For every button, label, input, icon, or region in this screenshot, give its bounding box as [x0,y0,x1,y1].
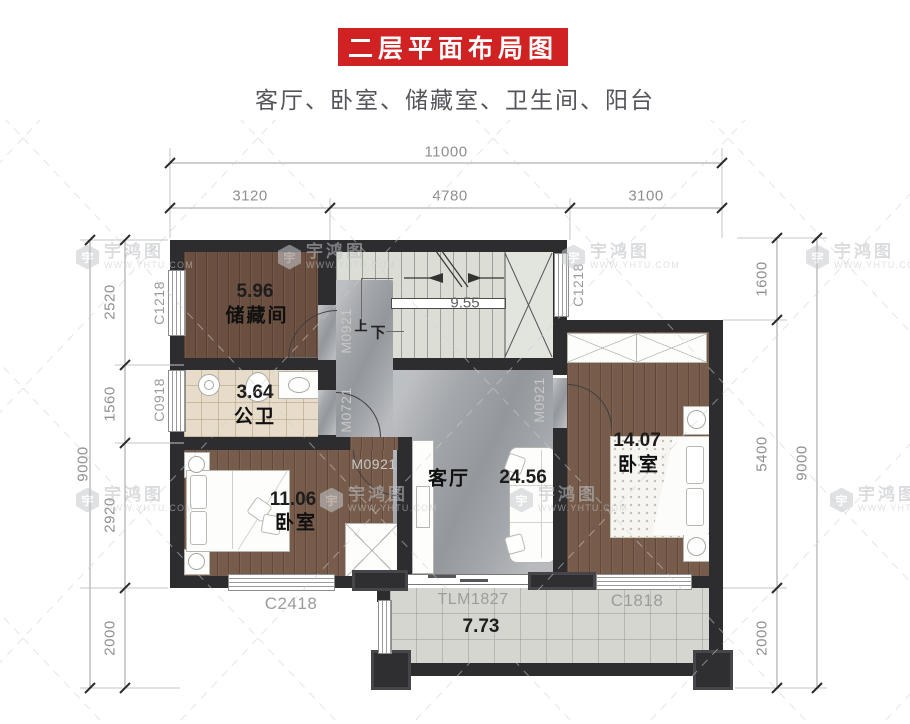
nightstand-left-top-plant [188,456,205,473]
label-window-c1818: C1818 [611,591,664,611]
wall-bottom-a [170,576,228,588]
page-subtitle: 客厅、卧室、储藏室、卫生间、阳台 [255,81,655,115]
page-title: 二层平面布局图 [348,29,558,65]
nightstand-right-bottom-lamp [687,537,706,556]
stair-handrail [391,298,506,309]
label-door-m0721-bath: M0721 [338,387,354,432]
bed-right-pillow-1 [686,446,704,484]
window-c0918-bath [168,370,186,432]
window-c1818 [596,574,692,590]
bed-right-pillow-2 [686,488,704,526]
dim-left-total: 9000 [75,446,92,481]
wall-bottom-c [690,576,723,588]
bed-left-pillow-2 [190,511,207,545]
sofa-cushion-line-2 [510,522,553,523]
watermark: 宇 宇鸿图 WWW.YHTU.COM [830,486,910,514]
dim-left-seg-2: 1560 [102,386,119,421]
stairs-down-label: 下 [370,322,385,343]
tv-set [416,486,430,528]
wardrobe-bedroom-right-panel-2 [636,333,707,363]
wall-right [709,320,723,680]
dim-left-seg-1: 2520 [102,284,119,319]
living-name: 客厅 [428,464,470,491]
wall-top-right [553,320,723,332]
wall-bath-bedroom [182,437,350,450]
bedroom-left-door-threshold [350,437,398,450]
window-balcony-left [378,600,392,654]
bathroom-name: 公卫 [234,402,276,429]
wardrobe-bedroom-right-panel-1 [567,333,638,363]
sliding-door-panel-1 [428,575,456,578]
stairs-area: 9.55 [450,295,479,312]
window-c2418 [228,574,335,591]
dim-top-seg-2: 4780 [429,188,470,205]
label-door-m0921-bedroom-right: M0921 [531,377,547,422]
label-door-m0921-bedroom-left: M0921 [351,456,396,472]
storage-name: 储藏间 [225,301,288,328]
wall-top [170,240,567,252]
wall-bedroom-left-right [397,438,412,576]
living-area: 24.56 [499,467,547,489]
bedroom-right-name: 卧室 [618,450,660,477]
bedroom-left-name: 卧室 [275,508,317,535]
bath-door-threshold [318,390,336,435]
label-door-m0921-storage: M0921 [338,308,354,353]
window-c1218-left [168,270,186,336]
label-window-c0918: C0918 [151,378,167,422]
wall-storage-right-a [318,240,336,305]
bath-vanity-sink [288,377,310,393]
label-window-c1218-stair: C1218 [570,263,586,307]
bed-left-pillow-1 [190,475,207,509]
balcony-area: 7.73 [463,616,500,638]
watermark-logo-icon: 宇 [830,488,853,513]
label-door-tlm1827: TLM1827 [437,591,508,609]
watermark-logo-icon: 宇 [806,245,829,270]
stair-landing [505,252,553,358]
watermark-logo-icon: 宇 [76,245,99,270]
label-window-c2418: C2418 [265,594,318,614]
wall-post-center [528,572,596,590]
balcony-post-right [693,650,733,690]
label-window-c1218-left: C1218 [151,281,167,325]
wall-stairs-bottom [393,358,553,370]
wall-storage-bath [182,358,336,370]
dim-top-seg-1: 3120 [229,188,270,205]
wall-living-bedroom-right [553,428,567,576]
stairs-up-label: 上 [354,316,367,335]
wall-bottom-b [333,576,353,588]
dim-top-total: 11000 [421,144,470,161]
dim-top-seg-3: 3100 [625,188,666,205]
watermark-logo-icon: 宇 [76,488,99,513]
stair-entry-line [386,331,404,332]
bath-round-basin-inner [204,380,214,390]
title-banner: 二层平面布局图 [338,28,568,66]
stairwell-edge-h [361,278,393,279]
dim-right-seg-2: 5400 [754,436,771,471]
dim-right-total: 9000 [794,445,811,480]
window-c1218-stair [554,253,569,317]
nightstand-left-bottom-plant [188,553,205,570]
sliding-door-panel-2 [460,579,488,582]
balcony-post-left [371,650,411,690]
dim-right-seg-3: 2000 [754,620,771,655]
dim-right-seg-1: 1600 [754,261,771,296]
wall-post-left [352,570,408,591]
balcony-wall-bottom [403,663,697,676]
bedroom-right-door-threshold [553,378,567,428]
dim-left-seg-4: 2000 [102,620,119,655]
watermark: 宇 宇鸿图 WWW.YHTU.COM [806,243,910,271]
bed-left-blanket-line [232,471,233,549]
dim-left-seg-3: 2920 [102,497,119,532]
nightstand-right-top-lamp [687,410,706,429]
